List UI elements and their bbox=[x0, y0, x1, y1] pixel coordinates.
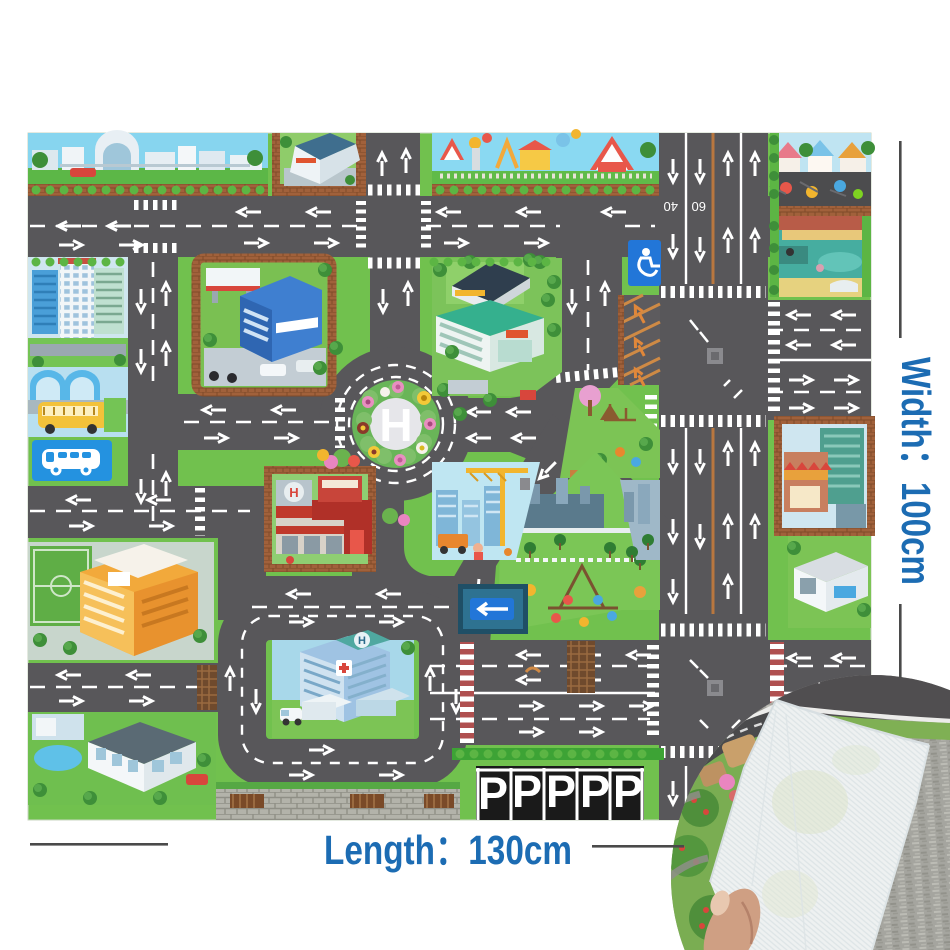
svg-text:P: P bbox=[580, 766, 610, 817]
svg-text:P: P bbox=[613, 766, 643, 817]
svg-text:40: 40 bbox=[664, 199, 678, 214]
svg-text:Width：100cm: Width：100cm bbox=[893, 357, 939, 585]
svg-text:Length：130cm: Length：130cm bbox=[324, 827, 572, 873]
svg-text:H: H bbox=[358, 635, 366, 647]
svg-text:H: H bbox=[289, 485, 298, 500]
svg-text:P: P bbox=[546, 766, 576, 817]
svg-text:H: H bbox=[379, 399, 412, 451]
svg-text:P: P bbox=[478, 768, 508, 819]
svg-text:P: P bbox=[512, 766, 542, 817]
svg-text:60: 60 bbox=[692, 199, 706, 214]
